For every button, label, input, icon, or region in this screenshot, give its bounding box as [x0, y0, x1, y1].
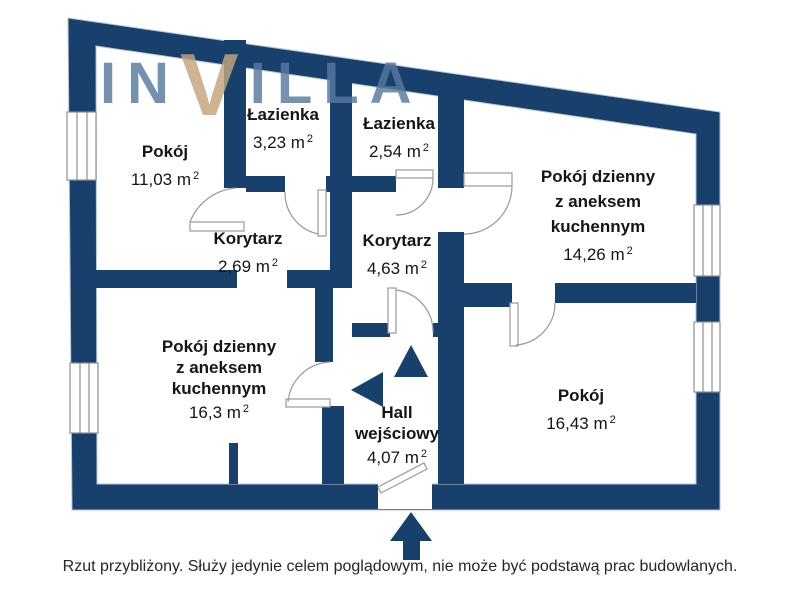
invilla-watermark-logo: INVILLA [100, 34, 423, 136]
door-swing-living-right [464, 173, 512, 234]
door-swing-korytarz-to-hall [388, 288, 433, 333]
window-icon-left-bottom [70, 363, 98, 433]
window-icon-left-top [67, 112, 96, 180]
hall-up-arrow-icon [394, 345, 428, 377]
floor-plan-stage: INVILLA Pokój 11,03 m2 Łazienka 3,23 m2 … [0, 0, 800, 600]
room-label-korytarz-center: Korytarz 4,63 m2 [363, 229, 432, 281]
entry-arrow-icon [390, 512, 432, 560]
window-icon-right-bottom [694, 322, 720, 392]
door-swing-lazienka-left [285, 190, 326, 236]
disclaimer-text: Rzut przybliżony. Służy jedynie celem po… [0, 558, 800, 576]
room-label-living-left: Pokój dzienny z aneksem kuchennym 16,3 m… [162, 336, 276, 423]
room-label-pokoj-bottom-right: Pokój 16,43 m2 [546, 384, 616, 436]
door-swing-pokoj-bottom-right [510, 303, 555, 346]
door-swing-pokoj-top-left [190, 188, 244, 231]
room-label-korytarz-left: Korytarz 2,69 m2 [214, 227, 283, 279]
watermark-prefix: IN [100, 51, 180, 116]
room-label-hall: Hall wejściowy 4,07 m2 [355, 402, 439, 468]
entry-door [378, 463, 432, 509]
watermark-accent-v: V [180, 35, 250, 134]
room-label-pokoj-top-left: Pokój 11,03 m2 [131, 140, 199, 192]
door-swing-lazienka-center [396, 170, 433, 215]
watermark-suffix: ILLA [250, 51, 423, 116]
room-label-living-right: Pokój dzienny z aneksem kuchennym 14,26 … [541, 164, 655, 267]
window-icon-right-top [694, 205, 720, 276]
door-swing-hall-to-living-left [286, 362, 330, 407]
